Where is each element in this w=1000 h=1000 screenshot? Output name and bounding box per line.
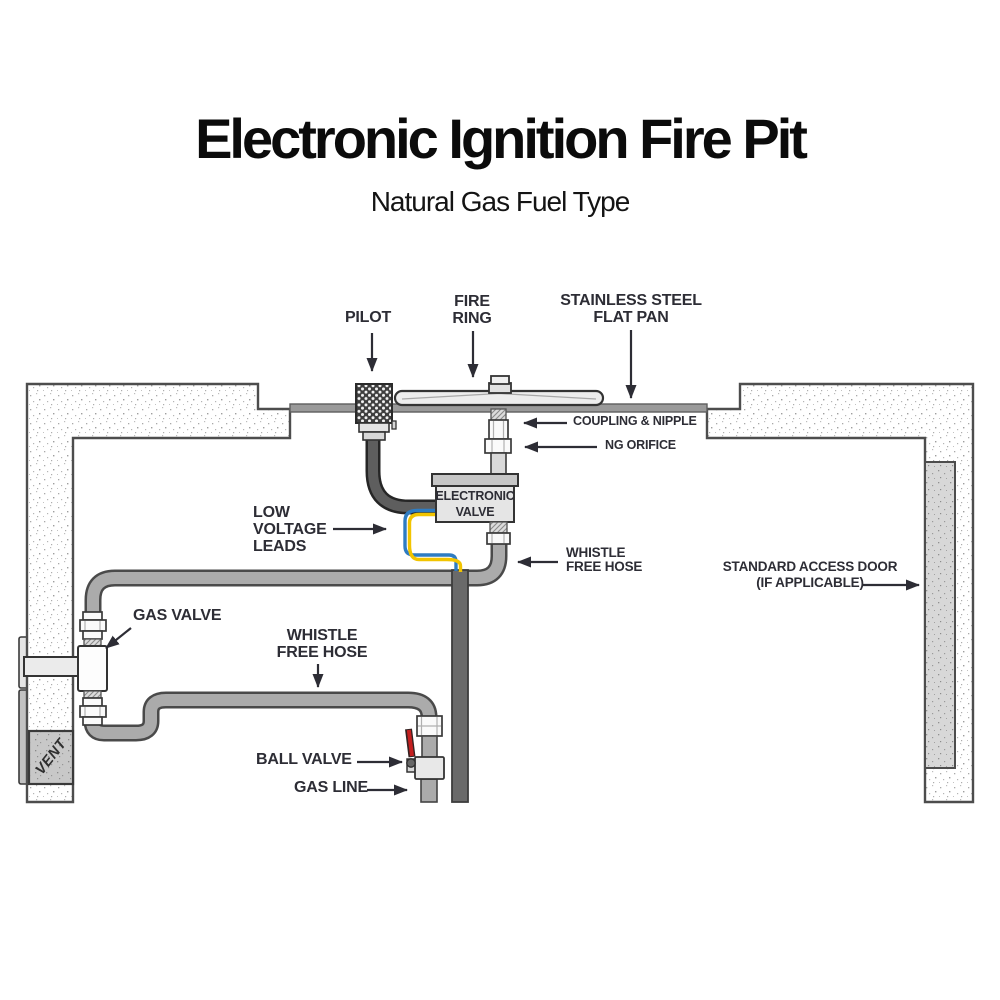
pilot-base bbox=[363, 432, 385, 440]
coupling-nipple-label: COUPLING & NIPPLE bbox=[573, 415, 697, 428]
diagram-page: Electronic Ignition Fire Pit Natural Gas… bbox=[0, 0, 1000, 1000]
valve-braided-nipple bbox=[490, 522, 507, 533]
yellow-wire bbox=[410, 515, 461, 573]
whistle-free-hose-lower-label: WHISTLE FREE HOSE bbox=[277, 627, 368, 661]
ring-hub-cap bbox=[491, 376, 509, 384]
whistle-free-hose-lower-path bbox=[92, 698, 429, 733]
gas-line-pipe bbox=[421, 779, 437, 802]
valve-outlet-fitting bbox=[487, 533, 510, 544]
ng-orifice-fitting bbox=[485, 439, 511, 453]
pilot-nub bbox=[392, 421, 396, 429]
pilot-cable bbox=[373, 437, 437, 507]
pilot-label: PILOT bbox=[345, 309, 391, 326]
gas-stub-pipe bbox=[24, 657, 81, 676]
low-voltage-leads-label: LOW VOLTAGE LEADS bbox=[253, 504, 327, 555]
ball-valve-pipe bbox=[422, 736, 437, 758]
fire-ring-label: FIRE RING bbox=[452, 293, 491, 327]
fire-ring bbox=[395, 376, 603, 405]
low-voltage-conduit bbox=[452, 570, 468, 802]
left-wall bbox=[19, 384, 290, 802]
electronic-valve-label: ELECTRONIC VALVE bbox=[435, 488, 514, 521]
gas-valve-body bbox=[78, 646, 107, 691]
ball-valve-body bbox=[415, 757, 444, 779]
access-door-panel bbox=[925, 462, 955, 768]
ball-valve-coupling bbox=[417, 716, 442, 736]
ball-valve-label: BALL VALVE bbox=[256, 751, 352, 768]
vent-panel bbox=[29, 731, 73, 784]
ball-valve-assembly bbox=[407, 716, 444, 779]
ball-valve-pivot bbox=[407, 759, 415, 767]
gas-valve-arrow bbox=[106, 628, 131, 648]
whistle-free-hose-upper-label: WHISTLE FREE HOSE bbox=[566, 546, 642, 575]
standard-access-door-label: STANDARD ACCESS DOOR (IF APPLICABLE) bbox=[723, 559, 898, 591]
pilot-burner bbox=[356, 384, 396, 440]
riser-pipe bbox=[491, 453, 506, 474]
pilot-collar bbox=[359, 423, 389, 432]
gas-valve-label: GAS VALVE bbox=[133, 607, 221, 624]
ng-orifice-label: NG ORIFICE bbox=[605, 439, 676, 452]
flat-pan-label: STAINLESS STEEL FLAT PAN bbox=[560, 292, 702, 326]
right-wall bbox=[707, 384, 973, 802]
coupling-nipple-fitting bbox=[489, 420, 508, 439]
gas-line-label: GAS LINE bbox=[294, 779, 368, 796]
riser-assembly bbox=[485, 409, 511, 474]
